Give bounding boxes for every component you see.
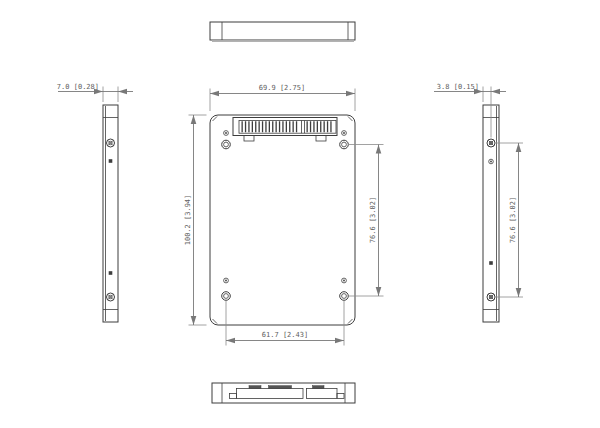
mounting-hole [222,292,231,301]
mounting-hole-inner [224,142,229,147]
dimension-height: 100.2 [3.94] [184,115,207,325]
connector-key [269,386,292,389]
connector-recess [239,121,336,134]
connector-tab-right [316,136,326,142]
dimension-side-hole-span: 76.6 [3.02] [496,143,524,297]
front-holes [222,131,349,301]
ssd-dimension-drawing: 69.9 [2.75] 100.2 [3.94] 76.6 [3.02] 61.… [0,0,600,428]
dimension-width: 69.9 [2.75] [210,84,355,111]
connector-tab-left [244,136,254,142]
mounting-hole [222,140,231,149]
top-view [210,22,355,41]
sata-connector-top [233,118,337,142]
dimension-label-bottom-span: 61.7 [2.43] [262,331,308,339]
dimension-label-height: 100.2 [3.94] [184,195,192,246]
mounting-hole-inner [342,142,347,147]
dimension-label-side-span: 76.6 [3.02] [509,197,517,243]
dimension-label-width: 69.9 [2.75] [259,84,305,92]
connector-tab-left [230,394,237,399]
connector-key [249,386,261,389]
bottom-view [212,383,355,403]
dimension-hole-offset: 3.8 [0.15] [434,83,506,138]
screw-hole-dot [490,161,492,163]
left-side-view [103,105,118,322]
side-marker-square [109,271,113,275]
side-screw-top [487,139,495,147]
side-screw-bottom [107,293,115,301]
dimension-label-front-span: 76.6 [3.02] [369,197,377,243]
dimension-front-hole-span: 76.6 [3.02] [349,145,384,297]
dimension-label-hole-offset: 3.8 [0.15] [437,83,479,91]
technical-drawing-page: 69.9 [2.75] 100.2 [3.94] 76.6 [3.02] 61.… [0,0,600,428]
connector-tab-right [337,394,344,399]
front-view-outline [210,115,355,325]
side-screw-top [107,139,115,147]
mounting-hole [340,140,349,149]
mounting-hole [340,292,349,301]
power-connector-block [237,389,304,399]
top-view-outline [210,22,355,40]
screw-hole-dot [343,280,345,282]
connector-key [313,386,325,389]
screw-hole-dot [343,132,345,134]
dimension-label-thickness: 7.0 [0.28] [57,83,99,91]
right-side-view [483,105,499,322]
mounting-hole-inner [342,294,347,299]
screw-hole-dot [225,132,227,134]
signal-connector-block [307,389,338,399]
side-screw-bottom [487,293,495,301]
side-marker-square [489,261,493,265]
dimension-thickness: 7.0 [0.28] [57,83,133,102]
sata-connector-bottom [230,386,345,399]
mounting-hole-inner [224,294,229,299]
front-view [210,115,355,325]
screw-hole-dot [225,280,227,282]
dimension-bottom-hole-span: 61.7 [2.43] [226,301,344,346]
side-marker-square [109,159,113,163]
